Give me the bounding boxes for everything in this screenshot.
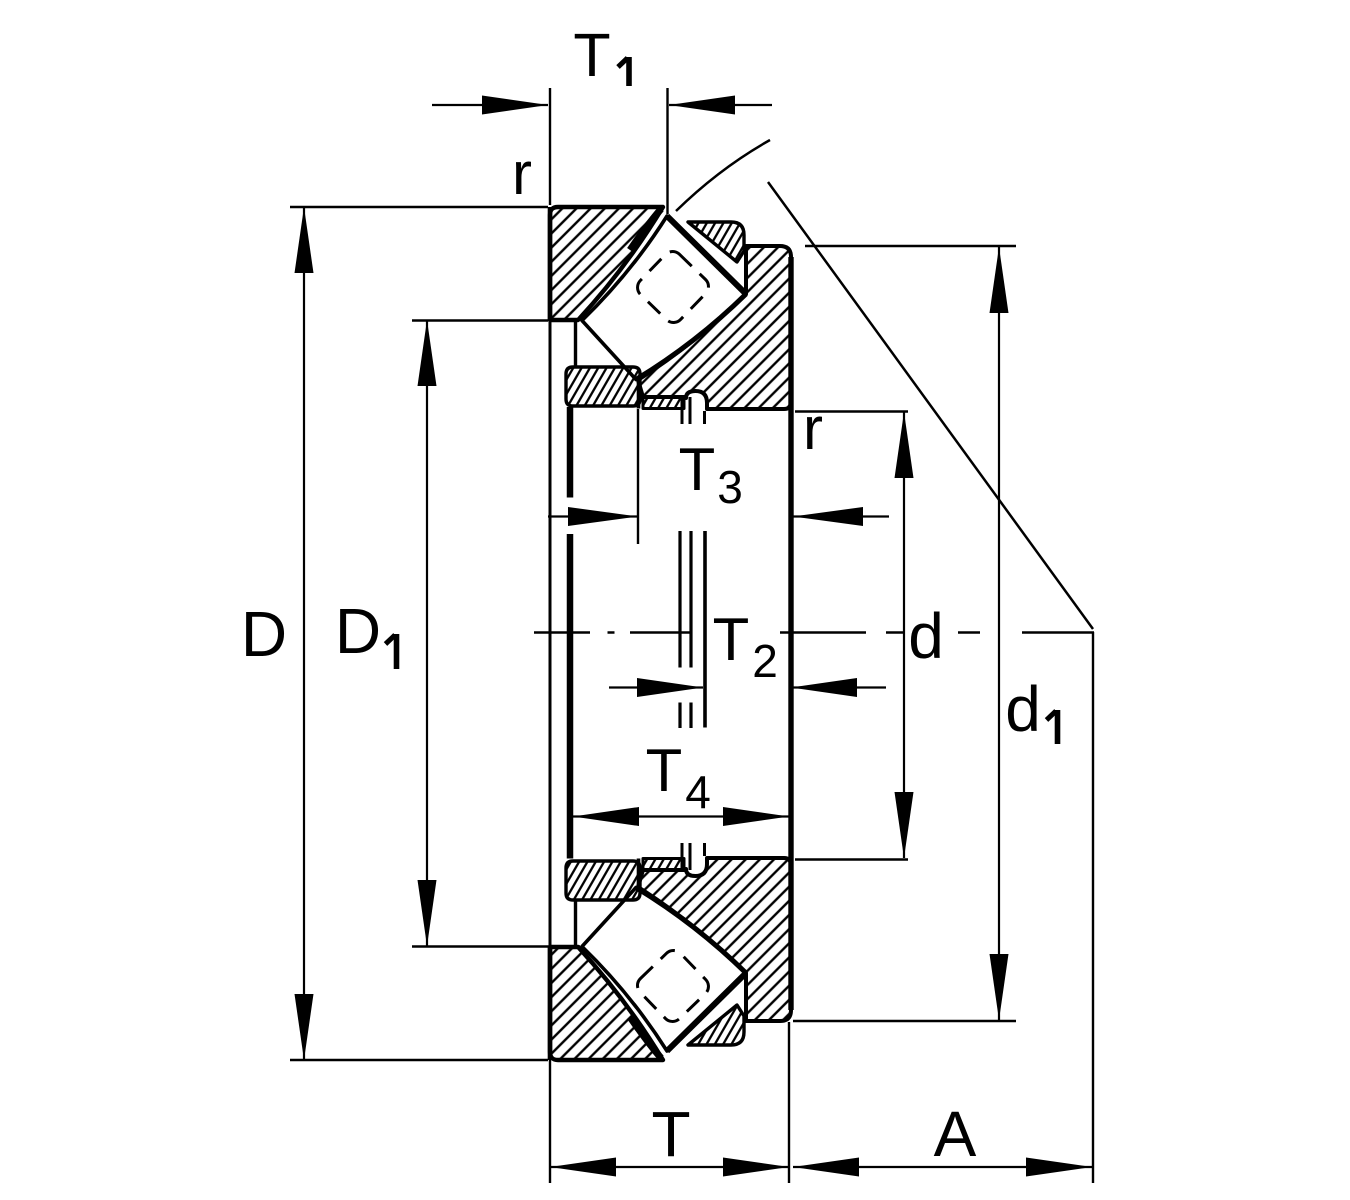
svg-text:3: 3 xyxy=(717,461,743,513)
svg-text:T: T xyxy=(651,1098,690,1170)
svg-text:d: d xyxy=(1005,673,1041,745)
svg-text:T: T xyxy=(679,436,716,503)
svg-text:D: D xyxy=(335,595,381,667)
svg-text:A: A xyxy=(934,1098,977,1170)
svg-text:4: 4 xyxy=(685,766,711,818)
svg-text:2: 2 xyxy=(752,635,778,687)
svg-text:T: T xyxy=(573,21,610,89)
svg-text:D: D xyxy=(241,598,287,670)
svg-text:T: T xyxy=(713,606,750,673)
svg-text:r: r xyxy=(512,140,532,207)
svg-text:T: T xyxy=(646,737,683,804)
svg-text:d: d xyxy=(908,600,944,672)
svg-text:r: r xyxy=(803,395,823,462)
